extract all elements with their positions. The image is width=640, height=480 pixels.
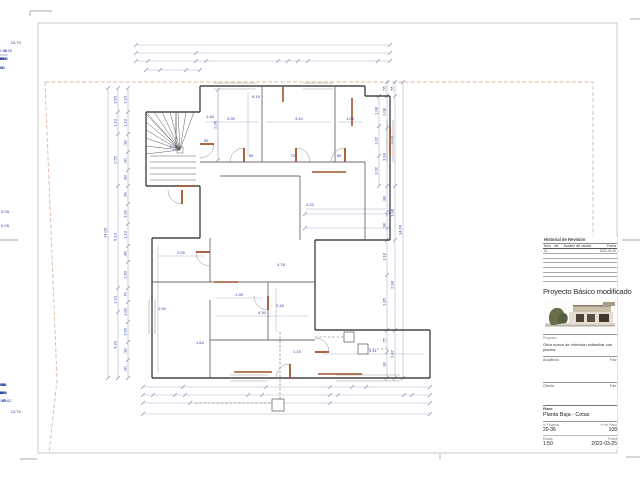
architect-signature-block: Arquitecto Fdo:: [543, 356, 617, 378]
svg-text:2.05: 2.05: [177, 250, 186, 255]
svg-text:.90: .90: [382, 361, 387, 367]
revision-table: Núm.Ind.Nombre del cambioFecha012022-03-…: [543, 243, 617, 282]
svg-text:17.5: 17.5: [169, 144, 178, 149]
svg-text:1.10: 1.10: [123, 230, 128, 239]
project-no-label: nº Proyecto: [543, 423, 559, 427]
svg-text:.80: .80: [123, 250, 128, 256]
svg-text:2.92: 2.92: [158, 306, 167, 311]
svg-text:2.06: 2.06: [213, 120, 218, 129]
svg-text:.70: .70: [123, 291, 128, 297]
svg-text:1.20: 1.20: [123, 95, 128, 104]
svg-text:15.75: 15.75: [11, 409, 22, 414]
svg-text:1.05: 1.05: [346, 116, 355, 121]
svg-text:2.45: 2.45: [276, 303, 285, 308]
client-signature-block: Cliente Fdo:: [543, 382, 617, 402]
svg-text:.90: .90: [123, 139, 128, 145]
svg-text:2.55: 2.55: [113, 155, 118, 164]
svg-text:1.00: 1.00: [123, 307, 128, 316]
svg-text:1.00: 1.00: [123, 209, 128, 218]
svg-text:2.98: 2.98: [390, 280, 395, 289]
svg-text:1.10: 1.10: [113, 118, 118, 127]
svg-text:.90: .90: [123, 157, 128, 163]
project-number-row: nº Proyecto nº de Plano 20-36 108: [543, 421, 617, 434]
svg-text:2.20: 2.20: [306, 202, 315, 207]
svg-text:.88: .88: [382, 195, 387, 201]
svg-text:.55: .55: [390, 85, 395, 91]
svg-text:1.20: 1.20: [113, 295, 118, 304]
svg-text:14.00: 14.00: [103, 227, 108, 238]
svg-text:5.05: 5.05: [1, 209, 10, 214]
svg-text:4.78: 4.78: [277, 262, 286, 267]
architect-signature-label: Fdo:: [610, 358, 617, 362]
svg-text:.90: .90: [123, 365, 128, 371]
doors: [168, 144, 345, 378]
sheet-label: Plano:: [543, 407, 617, 411]
svg-text:1.50: 1.50: [113, 95, 118, 104]
svg-text:1.00: 1.00: [123, 327, 128, 336]
svg-text:.90: .90: [123, 347, 128, 353]
svg-text:15.73: 15.73: [11, 40, 22, 45]
svg-text:.80: .80: [123, 174, 128, 180]
svg-text:2.90: 2.90: [227, 116, 236, 121]
interior-walls: [152, 86, 365, 378]
svg-text:1.02: 1.02: [374, 136, 379, 145]
svg-text:5.10: 5.10: [113, 232, 118, 241]
project-no-value: 20-36: [543, 427, 556, 433]
project-description-block: Proyecto: Obra nueva de vivienda unifami…: [543, 334, 617, 351]
scale-date-row: Escala Fecha 1:50 2022-03-25: [543, 435, 617, 448]
utility-lines: [195, 332, 388, 411]
svg-text:2.60: 2.60: [0, 382, 7, 387]
scale-value: 1:50: [543, 441, 553, 447]
date-value: 2022-03-25: [591, 441, 617, 447]
svg-text:1.95: 1.95: [235, 292, 244, 297]
revision-title: Historial de Revisión: [544, 237, 617, 242]
svg-text:1.15: 1.15: [293, 349, 302, 354]
project-description: Obra nueva de vivienda unifamiliar con p…: [543, 342, 617, 352]
client-label: Cliente: [543, 384, 554, 388]
scale-label: Escala: [543, 437, 553, 441]
architect-label: Arquitecto: [543, 358, 559, 362]
plan-no-value: 108: [609, 427, 617, 433]
svg-text:8.20: 8.20: [4, 48, 13, 53]
svg-text:1.64: 1.64: [196, 340, 205, 345]
svg-text:1.93: 1.93: [382, 152, 387, 161]
svg-text:2.40: 2.40: [0, 398, 7, 403]
svg-text:90: 90: [204, 138, 209, 143]
sheet-name-block: Plano: Planta Baja - Cotas: [543, 405, 617, 419]
client-signature-label: Fdo:: [610, 384, 617, 388]
svg-text:.55: .55: [382, 85, 387, 91]
windows: [149, 83, 400, 381]
svg-text:1.18: 1.18: [382, 252, 387, 261]
svg-text:14.60: 14.60: [398, 224, 403, 235]
svg-text:80: 80: [249, 153, 254, 158]
svg-text:1.47: 1.47: [390, 349, 395, 358]
site-boundary: [45, 82, 593, 453]
date-label: Fecha: [608, 437, 617, 441]
svg-text:1.08: 1.08: [382, 107, 387, 116]
svg-text:1.85: 1.85: [382, 297, 387, 306]
svg-text:3.10: 3.10: [295, 116, 304, 121]
plan-no-label: nº de Plano: [601, 423, 617, 427]
svg-text:80: 80: [337, 153, 342, 158]
project-title: Proyecto Básico modificado: [543, 287, 617, 296]
title-block: Historial de Revisión Núm.Ind.Nombre del…: [543, 237, 617, 449]
revision-history: Historial de Revisión Núm.Ind.Nombre del…: [543, 237, 617, 282]
svg-text:1.08: 1.08: [374, 106, 379, 115]
svg-text:4.30: 4.30: [258, 310, 267, 315]
svg-text:1.10: 1.10: [123, 118, 128, 127]
svg-text:4.41: 4.41: [369, 348, 378, 353]
exterior-walls: [146, 86, 430, 378]
house-render-image: [543, 299, 617, 331]
svg-text:1.30: 1.30: [123, 270, 128, 279]
svg-text:1.02: 1.02: [374, 166, 379, 175]
svg-text:5.05: 5.05: [1, 223, 10, 228]
sheet-name: Planta Baja - Cotas: [543, 412, 617, 419]
svg-text:8.19: 8.19: [252, 94, 261, 99]
svg-text:1.40: 1.40: [206, 114, 215, 119]
svg-text:.75: .75: [382, 337, 387, 343]
drawing-sheet: 15.732.938.20.902.30.953.10.75.80.733.95…: [0, 0, 640, 480]
svg-text:72: 72: [291, 153, 296, 158]
project-label: Proyecto:: [543, 336, 617, 340]
svg-text:3.30: 3.30: [113, 340, 118, 349]
svg-text:.90: .90: [123, 191, 128, 197]
